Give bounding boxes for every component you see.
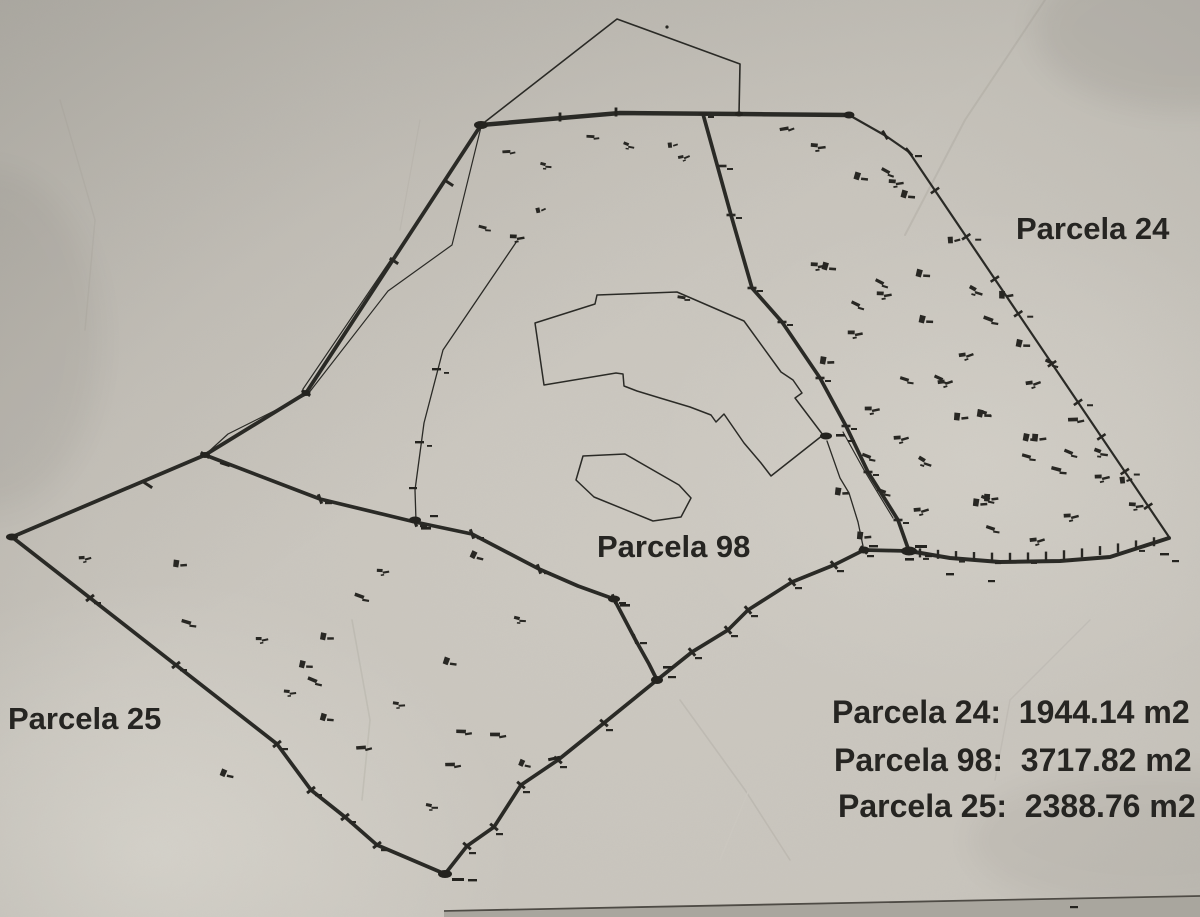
svg-text:Parcela 25: Parcela 25 bbox=[8, 701, 161, 736]
svg-text:Parcela 25: 2388.76 m2: Parcela 25: 2388.76 m2 bbox=[838, 788, 1196, 824]
svg-text:Parcela 98: Parcela 98 bbox=[597, 529, 750, 564]
svg-text:Parcela 24: Parcela 24 bbox=[1016, 211, 1170, 246]
svg-text:Parcela 24: 1944.14 m2: Parcela 24: 1944.14 m2 bbox=[832, 694, 1190, 730]
svg-text:Parcela 98: 3717.82 m2: Parcela 98: 3717.82 m2 bbox=[834, 742, 1192, 778]
